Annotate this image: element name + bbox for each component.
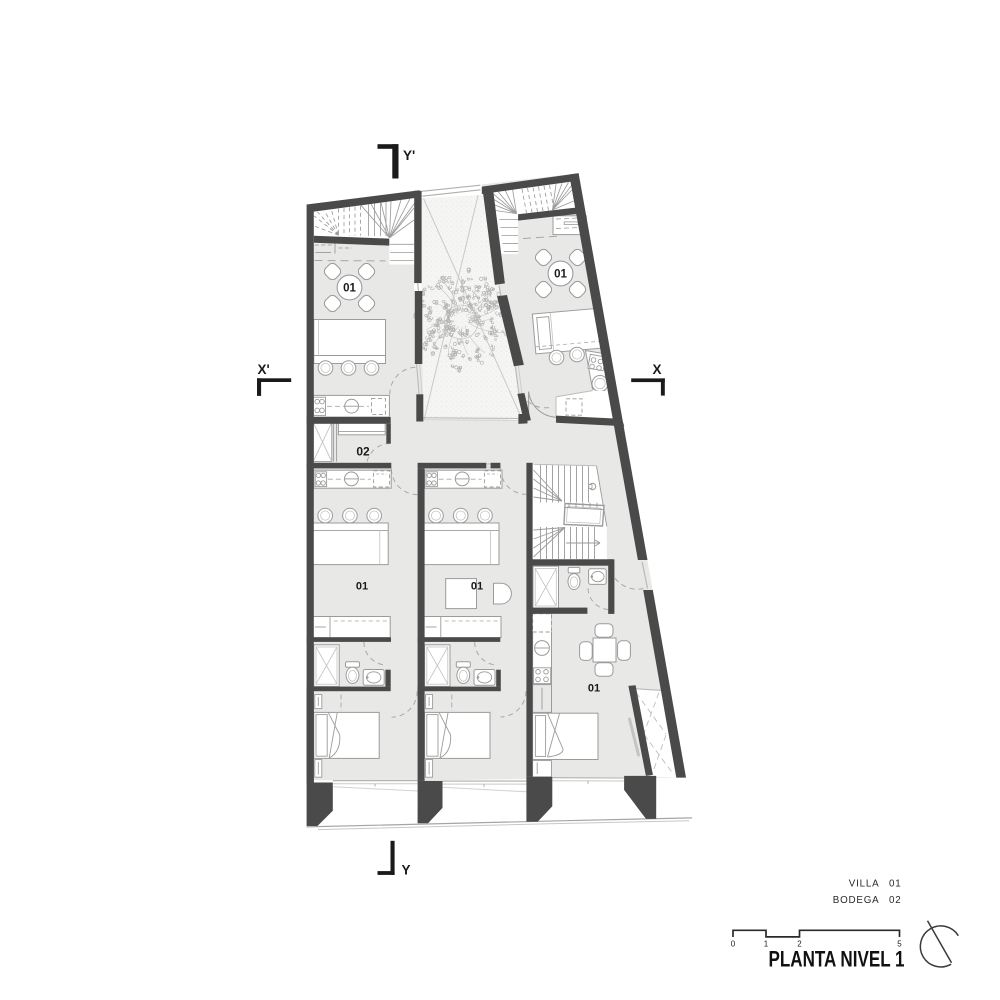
svg-text:0: 0 bbox=[731, 940, 736, 949]
svg-text:Y': Y' bbox=[403, 148, 415, 163]
svg-text:X': X' bbox=[258, 362, 270, 377]
svg-text:BODEGA: BODEGA bbox=[833, 895, 880, 906]
svg-text:X: X bbox=[653, 362, 662, 377]
svg-text:01: 01 bbox=[554, 269, 567, 281]
svg-text:01: 01 bbox=[343, 283, 356, 295]
svg-text:PLANTA NIVEL 1: PLANTA NIVEL 1 bbox=[769, 947, 905, 972]
svg-text:Y: Y bbox=[402, 863, 411, 878]
svg-text:02: 02 bbox=[889, 895, 902, 906]
svg-text:01: 01 bbox=[356, 581, 368, 593]
svg-text:01: 01 bbox=[889, 879, 902, 890]
svg-text:VILLA: VILLA bbox=[849, 879, 880, 890]
svg-text:01: 01 bbox=[588, 683, 600, 695]
svg-text:02: 02 bbox=[356, 445, 370, 459]
svg-text:01: 01 bbox=[471, 581, 483, 593]
